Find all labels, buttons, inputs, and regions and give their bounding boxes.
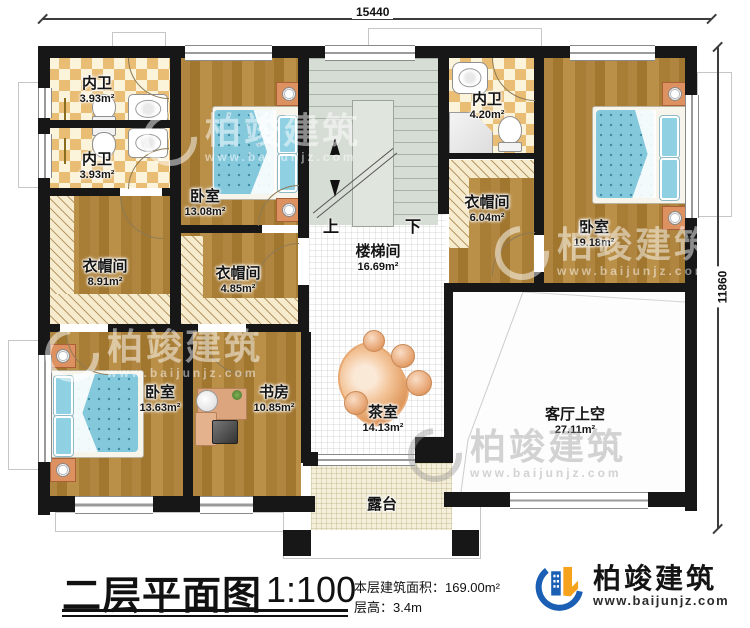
toilet-tank: [498, 142, 522, 152]
wall: [444, 292, 453, 440]
wall: [181, 225, 262, 233]
room-area: 8.91m²: [45, 276, 165, 288]
room-area: 27.11m²: [515, 424, 635, 436]
window: [510, 492, 648, 509]
wall: [246, 324, 309, 332]
brand-url: www.baijunjz.com: [593, 593, 729, 608]
room-label-tearoom: 茶室 14.13m²: [323, 405, 443, 434]
dimension-value-right: 11860: [715, 267, 729, 308]
wall: [38, 120, 170, 128]
sliding-door: [318, 454, 415, 466]
room-label-bedroom-top: 卧室 13.08m²: [145, 189, 265, 218]
pillow: [660, 116, 679, 158]
basin-icon: [458, 68, 481, 87]
pillow: [54, 416, 73, 456]
room-label-stairwell: 楼梯间 16.69m²: [318, 244, 438, 273]
wall: [298, 46, 309, 238]
window: [38, 355, 52, 462]
floor-area-text: 本层建筑面积：169.00m²: [354, 578, 500, 598]
wardrobe: [48, 294, 170, 324]
room-area: 4.20m²: [427, 109, 547, 121]
room-name: 内卫: [37, 76, 157, 93]
room-area: 4.85m²: [178, 283, 298, 295]
room-name: 衣帽间: [427, 195, 547, 212]
wall: [38, 188, 120, 196]
room-label-bathroom-1: 内卫 3.93m²: [37, 76, 157, 105]
room-name: 楼梯间: [318, 244, 438, 261]
lamp-icon: [56, 463, 70, 477]
window: [75, 496, 153, 514]
room-label-bedroom-bl: 卧室 13.63m²: [100, 385, 220, 414]
lamp-icon: [668, 211, 682, 225]
stair-down-label: 下: [405, 213, 421, 237]
room-area: 13.08m²: [145, 206, 265, 218]
wall: [449, 153, 534, 159]
room-area: 10.85m²: [214, 402, 334, 414]
terrace-post: [283, 530, 311, 556]
room-area: 16.69m²: [318, 261, 438, 273]
room-label-bathroom-2: 内卫 3.93m²: [37, 152, 157, 181]
room-name: 衣帽间: [178, 266, 298, 283]
wall-jamb: [303, 452, 318, 466]
plan-scale: 1:100: [266, 569, 356, 611]
void-marker-lines: [453, 292, 685, 492]
pouf: [363, 330, 385, 352]
room-area: 13.63m²: [100, 402, 220, 414]
room-name: 卧室: [100, 385, 220, 402]
room-name: 卧室: [534, 220, 654, 237]
stair-up-label: 上: [323, 213, 339, 237]
brand-logo-icon: [533, 560, 585, 612]
wall: [38, 324, 60, 332]
room-label-bedroom-tr: 卧室 19.18m²: [534, 220, 654, 249]
room-label-living-void: 客厅上空 27.11m²: [515, 407, 635, 436]
sink: [452, 62, 488, 94]
room-name: 客厅上空: [515, 407, 635, 424]
wall: [438, 46, 449, 214]
room-area: 19.18m²: [534, 237, 654, 249]
lamp-icon: [282, 87, 296, 101]
wall: [108, 324, 198, 332]
room-label-cloak-left: 衣帽间 8.91m²: [45, 259, 165, 288]
room-name: 内卫: [427, 92, 547, 109]
room-name: 内卫: [37, 152, 157, 169]
plan-info: 本层建筑面积：169.00m² 层高：3.4m: [354, 578, 500, 618]
room-label-study: 书房 10.85m²: [214, 385, 334, 414]
room-name: 露台: [322, 497, 442, 514]
pouf: [406, 370, 432, 396]
pouf: [391, 344, 415, 368]
room-name: 卧室: [145, 189, 265, 206]
bay-window-sill: [8, 340, 40, 470]
dimension-value-top: 15440: [352, 5, 393, 19]
pillow: [54, 376, 73, 416]
floorplan-page: { "dimensions": { "top": "15440", "right…: [0, 0, 750, 628]
computer-monitor: [212, 420, 238, 444]
window-sill: [697, 72, 732, 217]
window: [200, 496, 253, 514]
room-name: 茶室: [323, 405, 443, 422]
lamp-icon: [668, 87, 682, 101]
terrace-post: [452, 530, 479, 556]
nightstand: [50, 458, 76, 482]
room-area: 3.93m²: [37, 93, 157, 105]
window: [325, 45, 415, 61]
lamp-icon: [56, 349, 70, 363]
pillow: [660, 158, 679, 200]
room-area: 3.93m²: [37, 169, 157, 181]
window: [570, 45, 655, 61]
wall: [183, 332, 193, 498]
wardrobe: [181, 298, 298, 324]
window: [185, 45, 272, 61]
window-sill: [55, 512, 303, 532]
stair-direction-arrow: [330, 180, 340, 197]
title-underline-2: [62, 615, 348, 617]
brand-name: 柏竣建筑: [593, 564, 729, 593]
room-label-bathroom-tr: 内卫 4.20m²: [427, 92, 547, 121]
room-label-cloak-right: 衣帽间 6.04m²: [427, 195, 547, 224]
wardrobe: [449, 160, 534, 178]
room-name: 书房: [214, 385, 334, 402]
room-name: 衣帽间: [45, 259, 165, 276]
stair-direction-arrow: [330, 138, 340, 155]
room-label-cloak-mid: 衣帽间 4.85m²: [178, 266, 298, 295]
room-area: 14.13m²: [323, 422, 443, 434]
wall: [444, 283, 697, 292]
wall: [534, 272, 544, 283]
window: [685, 95, 699, 218]
plan-title: 二层平面图: [62, 565, 262, 621]
floor-height-text: 层高：3.4m: [354, 598, 500, 618]
room-area: 6.04m²: [427, 212, 547, 224]
pillow: [278, 116, 297, 154]
wall-step: [415, 437, 453, 463]
brand-logo: 柏竣建筑 www.baijunjz.com: [533, 560, 729, 612]
room-label-terrace: 露台: [322, 497, 442, 514]
